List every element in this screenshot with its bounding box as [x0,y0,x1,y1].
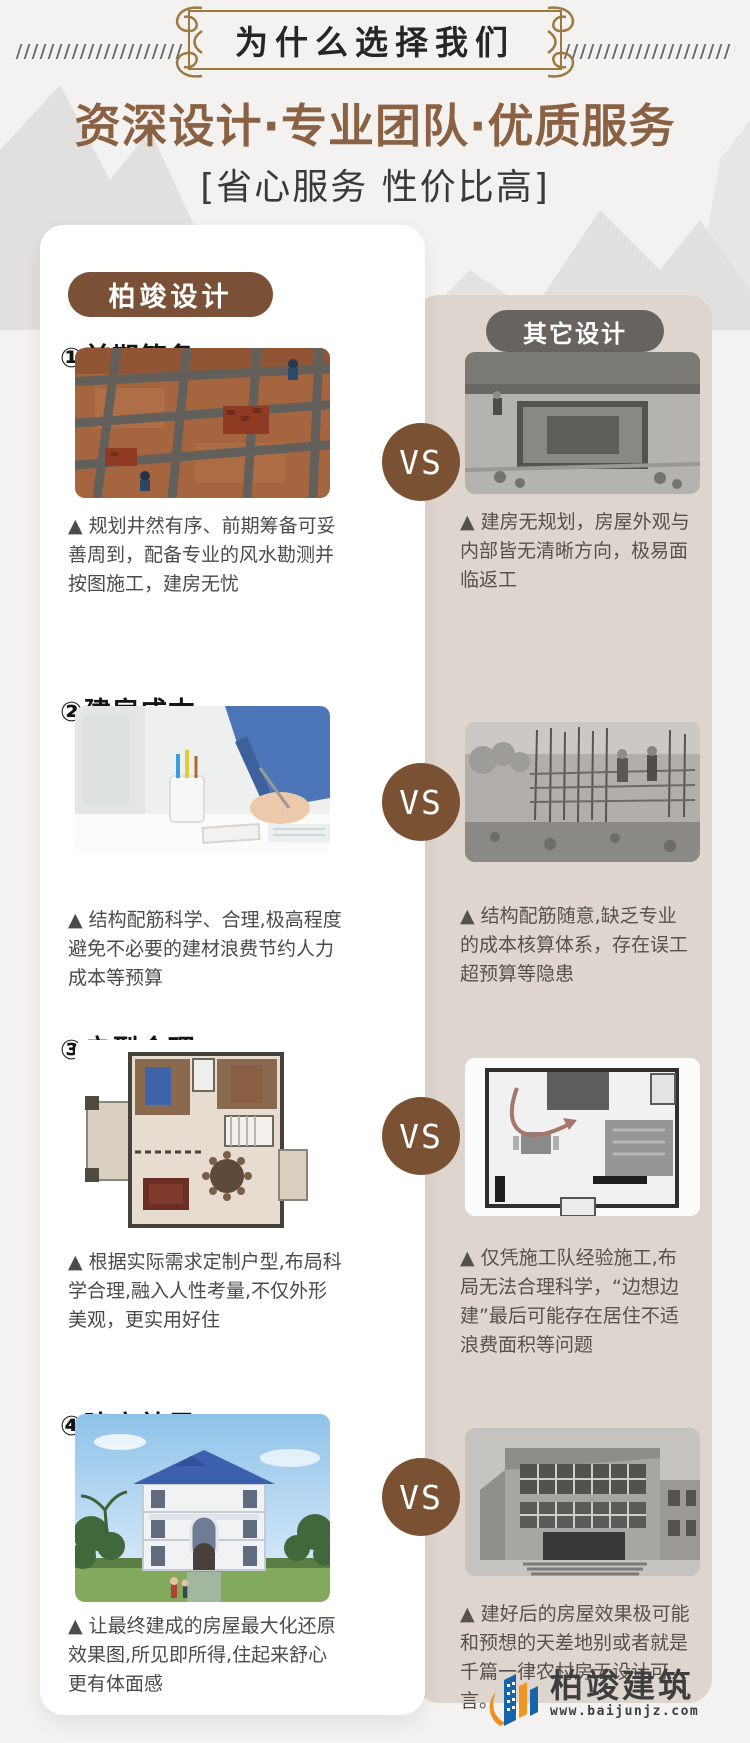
brand-logo: 柏竣建筑 www.baijunjz.com [486,1668,699,1732]
section-3-left-caption: ▲ 根据实际需求定制户型,布局科学合理,融入人性考量,不仅外形美观，更实用好住 [68,1248,343,1335]
scroll-ornament-icon [162,0,206,86]
vs-label: VS [399,1117,443,1156]
vs-label: VS [399,783,443,822]
vs-badge-4: VS [382,1458,460,1536]
baijun-design-badge: 柏竣设计 [68,272,273,317]
floorplan-custom-color [75,1040,330,1235]
header-ribbon-frame: 为什么选择我们 [188,10,562,70]
photo-cost-planning-desk [75,706,330,854]
other-design-badge: 其它设计 [486,310,664,352]
vs-label: VS [399,1478,443,1517]
photo-foundation-planned [75,348,330,498]
scroll-ornament-icon [544,0,588,86]
section-1-left-caption: ▲ 规划井然有序、前期筹备可妥善周到，配备专业的风水勘测并按图施工，建房无忧 [68,512,343,599]
photo-unfinished-house [465,1428,700,1576]
floorplan-adhoc-grayscale [465,1058,700,1216]
page-subtitle: [省心服务 性价比高] [0,158,750,210]
vs-badge-2: VS [382,763,460,841]
ribbon-title: 为什么选择我们 [235,16,515,64]
other-badge-label: 其它设计 [523,314,627,349]
section-2-left-caption: ▲ 结构配筋科学、合理,极高程度避免不必要的建材浪费节约人力成本等预算 [68,906,343,993]
brand-website: www.baijunjz.com [550,1704,699,1719]
section-1-right-caption: ▲ 建房无规划，房屋外观与内部皆无清晰方向，极易面临返工 [460,508,692,595]
photo-villa-render [75,1414,330,1602]
section-4-left-caption: ▲ 让最终建成的房屋最大化还原效果图,所见即所得,住起来舒心更有体面感 [68,1612,343,1699]
vs-badge-1: VS [382,423,460,501]
promo-poster: 为什么选择我们 资深设计·专业团队·优质服务 [省心服务 性价比高] 柏竣设计 … [0,0,750,1743]
baijun-building-logo-icon [486,1668,544,1732]
page-title: 资深设计·专业团队·优质服务 [0,90,750,156]
vs-badge-3: VS [382,1097,460,1175]
section-2-right-caption: ▲ 结构配筋随意,缺乏专业的成本核算体系，存在误工超预算等隐患 [460,902,692,989]
baijun-badge-label: 柏竣设计 [109,275,233,314]
section-3-right-caption: ▲ 仅凭施工队经验施工,布局无法合理科学，“边想边建”最后可能存在居住不适浪费面… [460,1244,692,1360]
photo-rebar-site [465,722,700,862]
hatch-marks-right [564,44,737,59]
vs-label: VS [399,443,443,482]
brand-name: 柏竣建筑 [550,1668,699,1704]
photo-foundation-unplanned [465,352,700,494]
